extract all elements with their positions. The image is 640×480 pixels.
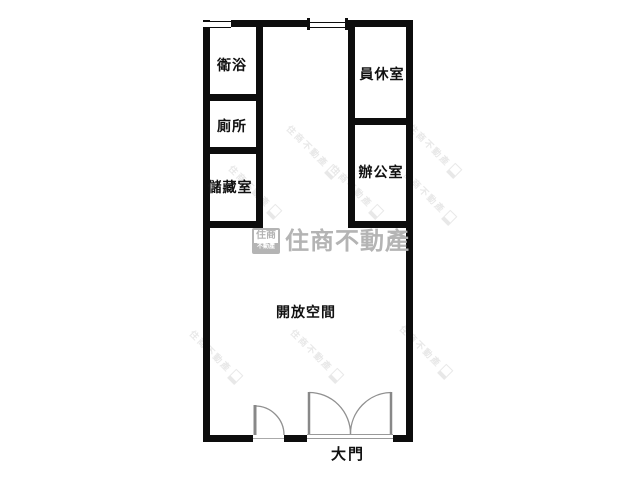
brand-logo-icon: 住商 不動產 [252,228,280,254]
double-door-icon [307,392,393,439]
room-label-office: 辦公室 [359,162,404,182]
room-label-storage: 儲藏室 [208,177,253,197]
room-label-bathroom: 衛浴 [217,55,247,75]
room-label-toilet: 廁所 [217,116,247,136]
single-door-icon [253,405,284,439]
room-label-open-space: 開放空間 [276,302,336,322]
brand-watermark: 住商 不動產 住商不動產 [252,228,410,255]
brand-logo-top-text: 住商 [256,230,276,242]
brand-watermark-text: 住商不動產 [285,228,410,255]
brand-logo-bottom-text: 不動產 [254,243,278,252]
floorplan-canvas: 住商不動產 住商不動產 住商不動產 住商不動產 住商不動產 住商不動產 住商不動… [0,0,640,480]
room-label-staff-rest: 員休室 [360,64,405,84]
entrance-label: 大門 [331,443,365,464]
